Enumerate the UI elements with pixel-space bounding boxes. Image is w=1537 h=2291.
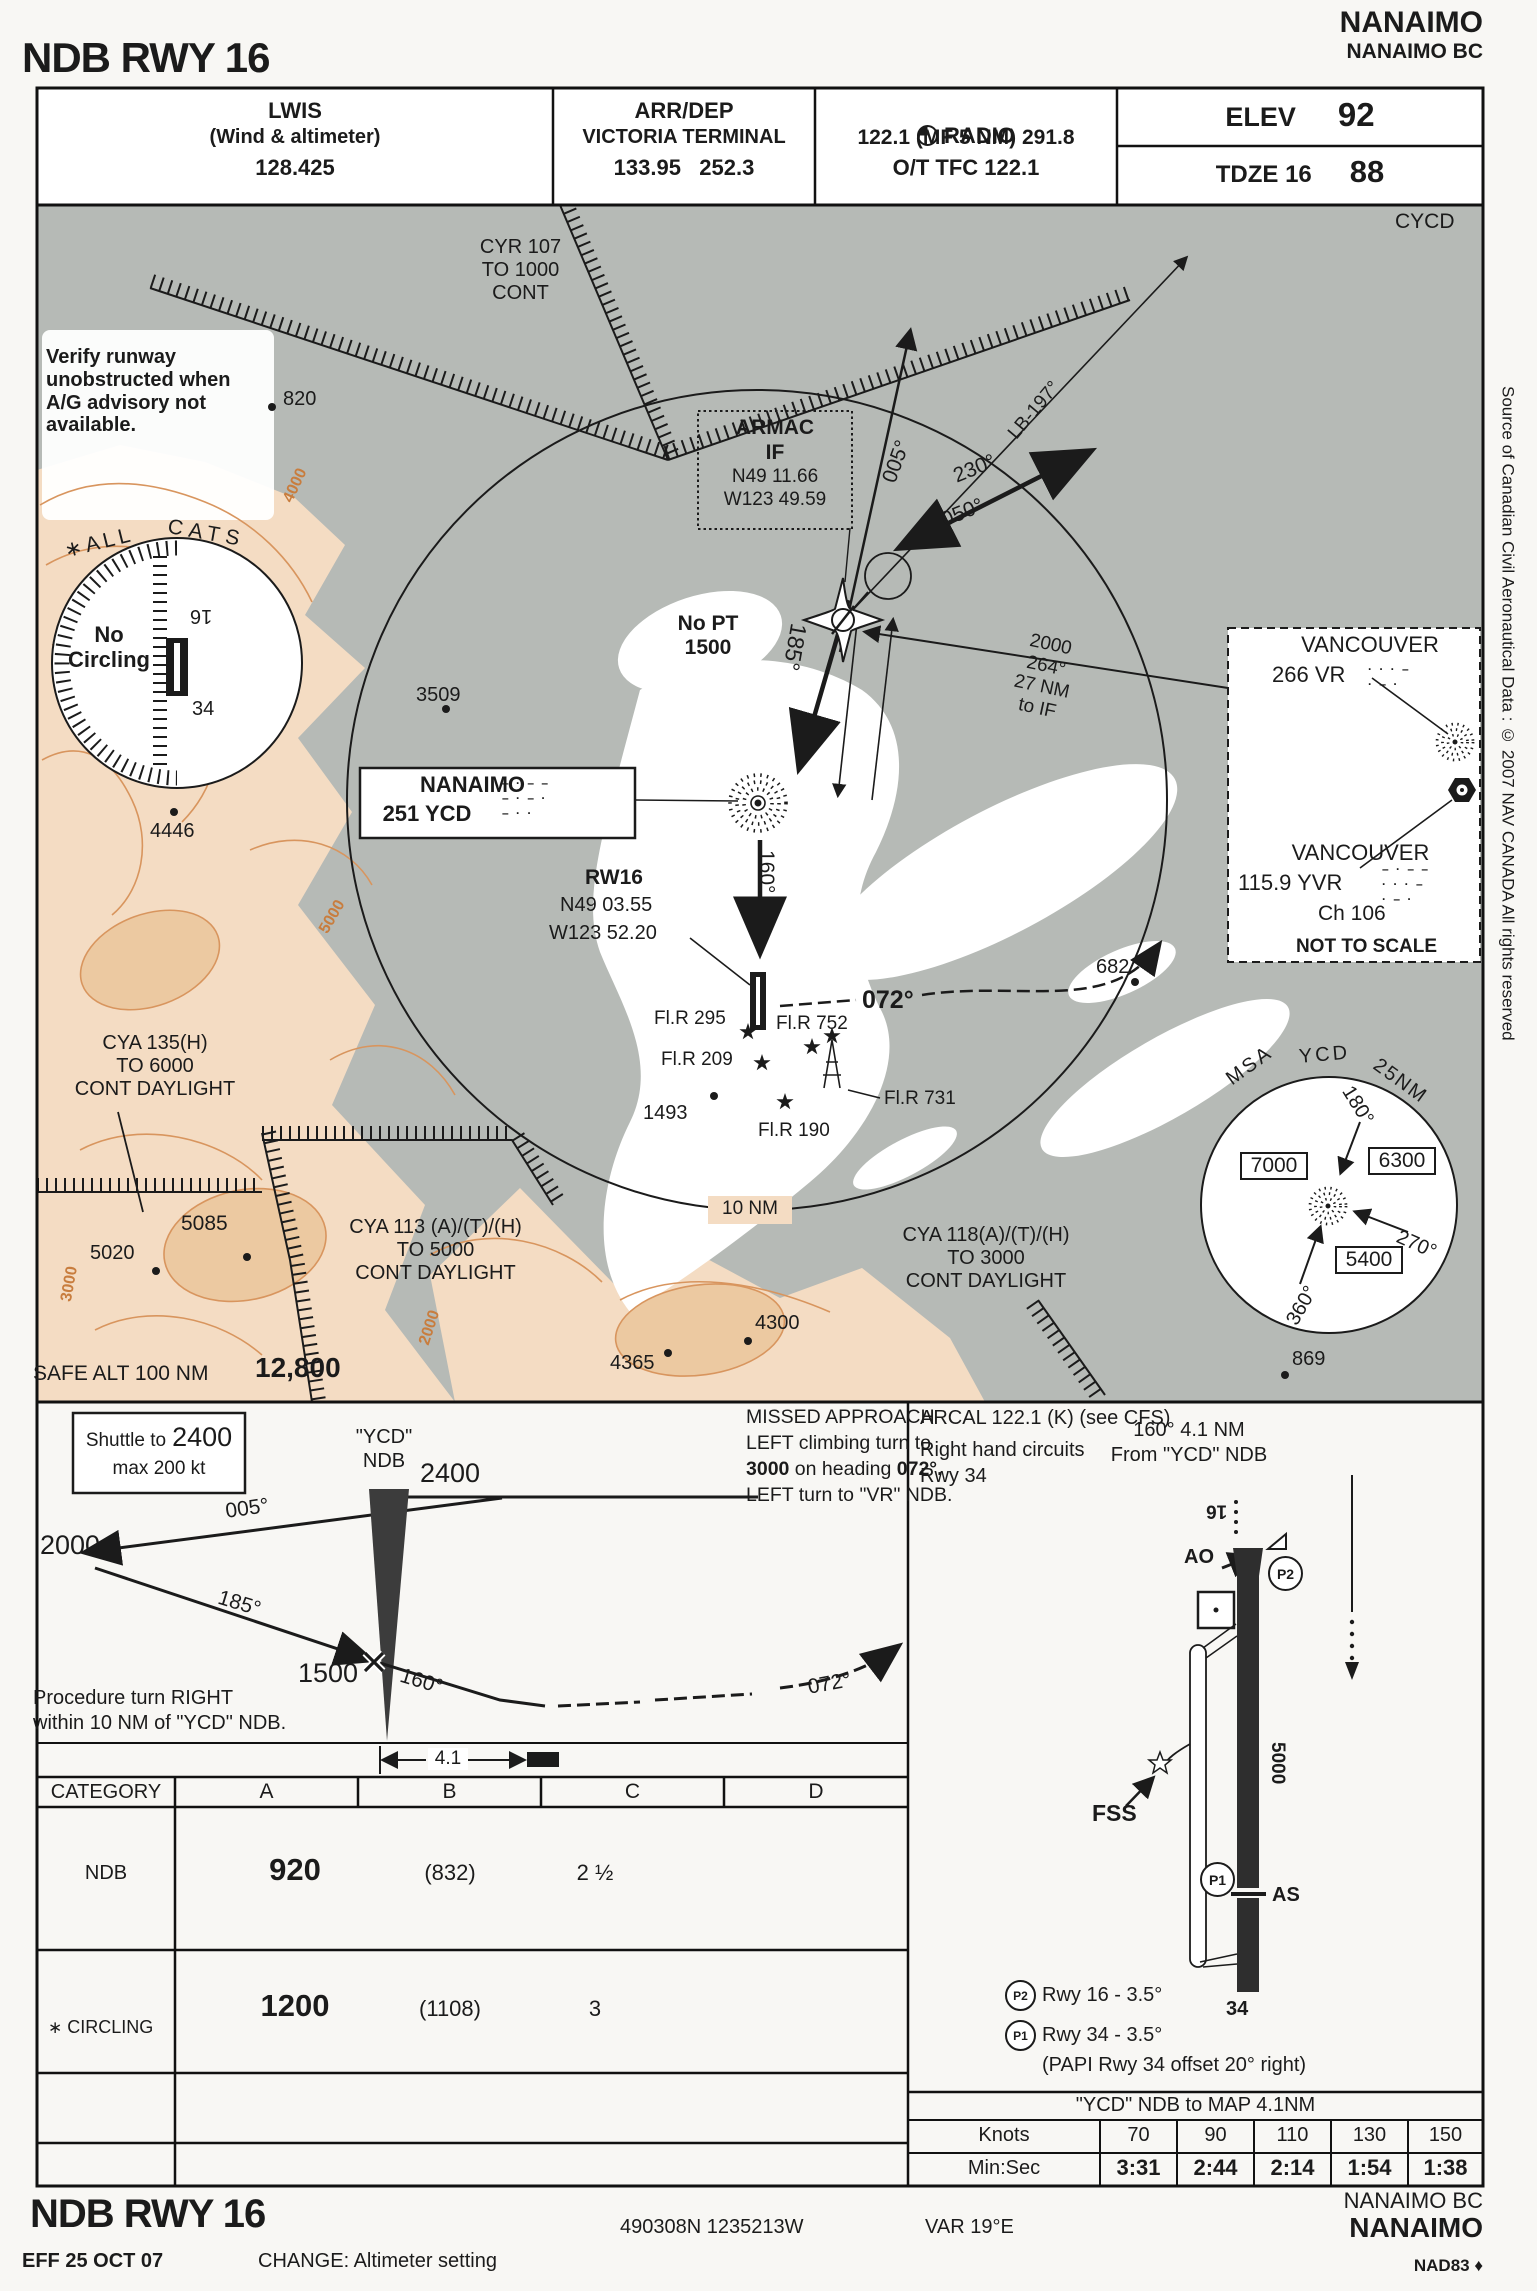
ruler-4-1: 4.1 [428,1748,468,1770]
missed-line3: 3000 on heading 072°. [746,1458,943,1480]
no-circling-label: No Circling [58,622,160,672]
speed-time-110: 2:14 [1254,2155,1331,2180]
minima-ndb-vis: 2 ½ [540,1860,650,1885]
spot-4300: 4300 [755,1312,800,1335]
inset-name1: VANCOUVER [1280,632,1460,657]
safe-alt-value: 12,800 [255,1352,341,1384]
arrdep-name: VICTORIA TERMINAL [553,126,815,149]
msa-circle [1201,1077,1457,1333]
speed-knot-150: 150 [1408,2124,1483,2147]
minima-header-a: A [175,1780,358,1804]
sketch-as: AS [1272,1884,1300,1907]
minima-circling-alt: 1200 [225,1988,365,2023]
spot-4446: 4446 [150,820,195,843]
sketch-rwy34: 34 [1226,1998,1248,2021]
arrdep-title: ARR/DEP [553,98,815,123]
minima-circling-paren: (1108) [395,1996,505,2021]
lwis-title: LWIS [37,98,553,123]
ndb-morse: – · – – – · – · – · · [502,776,627,821]
note-p1-circle: P1 [1005,2020,1036,2051]
lwis-sub: (Wind & altimeter) [37,126,553,149]
profile-ndb: NDB [356,1450,412,1473]
footer-location: NANAIMO BC [1230,2188,1483,2213]
speed-knot-110: 110 [1254,2124,1331,2147]
msa-title-2: YCD [1298,1042,1351,1069]
verify-note: Verify runway unobstructed when A/G advi… [46,346,271,437]
rw16-label: RW16 [585,866,643,890]
inset-morse2: – · – – · · · – · – · [1382,862,1430,907]
sketch-rwy16: 16 [1206,1500,1227,1522]
rw16-lat: N49 03.55 [560,894,652,917]
minima-header-b: B [358,1780,541,1804]
ring-10nm-label: 10 NM [710,1198,790,1220]
profile-2400: 2400 [420,1458,480,1489]
radio-freq: 122.1 (MF 5 NM) 291.8 [815,126,1117,150]
radio-other: O/T TFC 122.1 [815,155,1117,180]
profile-ndb-q: "YCD" [352,1426,416,1449]
chart-graphics [0,0,1537,2291]
footer-title: NDB RWY 16 [30,2192,265,2238]
ndb-freq: 251 YCD [362,801,492,826]
armac-lat: N49 11.66 [698,466,852,488]
missed-line1: MISSED APPROACH [746,1406,935,1428]
speed-time-label: Min:Sec [908,2157,1100,2180]
cya-118: CYA 118(A)/(T)/(H) TO 3000 CONT DAYLIGHT [876,1224,1096,1292]
speed-time-150: 1:38 [1408,2155,1483,2180]
armac-lon: W123 49.59 [698,489,852,511]
footer-effective-date: EFF 25 OCT 07 [22,2250,163,2273]
no-pt-label: No PT 1500 [664,612,752,660]
safe-alt-label: SAFE ALT 100 NM [33,1362,208,1386]
minima-header-category: CATEGORY [37,1781,175,1804]
note-p1-text: Rwy 34 - 3.5° [1042,2024,1162,2047]
minima-header-c: C [541,1780,724,1804]
airport-name-top: NANAIMO [1230,6,1483,40]
msa-7000: 7000 [1240,1152,1308,1180]
shuttle-line2: max 200 kt [73,1458,245,1480]
spot-869: 869 [1292,1348,1325,1371]
speed-time-90: 2:44 [1177,2155,1254,2180]
spot-820: 820 [283,388,316,411]
lwis-freq: 128.425 [37,155,553,180]
runway-symbol-map [750,972,766,1030]
footer-variation: VAR 19°E [925,2216,1014,2239]
speed-title: "YCD" NDB to MAP 4.1NM [908,2094,1483,2117]
inset-morse1: · · · – · – · [1368,662,1411,692]
page-title: NDB RWY 16 [22,34,270,82]
rw16-lon: W123 52.20 [549,922,657,945]
note-papi-text: (PAPI Rwy 34 offset 20° right) [1042,2054,1306,2077]
note-p2-circle: P2 [1005,1980,1036,2011]
bearing-160-map: 160° [754,850,778,893]
msa-5400: 5400 [1335,1246,1403,1274]
airport-location-top: NANAIMO BC [1230,40,1483,64]
from-ndb-note: 160° 4.1 NM From "YCD" NDB [1094,1418,1284,1468]
sketch-5000: 5000 [1266,1742,1288,1784]
footer-coords: 490308N 1235213W [620,2216,803,2239]
footer-change-note: CHANGE: Altimeter setting [258,2250,497,2273]
light-731: Fl.R 731 [884,1088,956,1110]
msa-6300: 6300 [1368,1147,1436,1175]
spot-3509: 3509 [416,684,461,707]
note-p2-text: Rwy 16 - 3.5° [1042,1984,1162,2007]
light-295: Fl.R 295 [654,1008,726,1030]
arrdep-freqs: 133.95 252.3 [553,155,815,180]
tdze-row: TDZE 16 88 [1117,154,1483,189]
footer-datum: NAD83 ♦ [1230,2256,1483,2275]
aerodrome-sketch [1126,1475,1359,1992]
spot-4365: 4365 [610,1352,655,1375]
profile-1500: 1500 [298,1658,358,1689]
light-752: Fl.R 752 [776,1013,848,1035]
light-190: Fl.R 190 [758,1120,830,1142]
nc-16: 16 [190,604,212,627]
cyr107-label: CYR 107 TO 1000 CONT [458,236,583,304]
speed-knot-90: 90 [1177,2124,1254,2147]
minima-circling-label: ∗ CIRCLING [48,1996,153,2037]
footer-name: NANAIMO [1230,2212,1483,2244]
light-209: Fl.R 209 [661,1049,733,1071]
missed-line2: LEFT climbing turn to [746,1432,931,1454]
speed-knot-130: 130 [1331,2124,1408,2147]
speed-knots-label: Knots [908,2124,1100,2147]
spot-5085: 5085 [181,1212,228,1236]
sketch-ao: AO [1184,1546,1214,1569]
sketch-p2-circle: P2 [1268,1556,1303,1591]
approach-chart-page: NDB RWY 16 NANAIMO NANAIMO BC LWIS (Wind… [0,0,1537,2291]
elev-row: ELEV 92 [1117,96,1483,134]
cya-135: CYA 135(H) TO 6000 CONT DAYLIGHT [50,1032,260,1100]
bearing-072-map: 072° [862,986,914,1015]
sketch-fss: FSS [1092,1800,1137,1826]
minima-circling-vis: 3 [540,1996,650,2021]
spot-1493: 1493 [643,1102,688,1125]
speed-knot-70: 70 [1100,2124,1177,2147]
profile-2000: 2000 [40,1530,100,1561]
copyright-note: Source of Canadian Civil Aeronautical Da… [1498,386,1517,1076]
inset-channel: Ch 106 [1318,902,1386,926]
procedure-turn-note: Procedure turn RIGHT within 10 NM of "YC… [33,1686,286,1736]
inset-id1: 266 VR [1272,662,1345,687]
spot-682: 682 [1096,956,1129,979]
speed-time-130: 1:54 [1331,2155,1408,2180]
nc-34: 34 [192,698,214,721]
spot-5020: 5020 [90,1242,135,1265]
circuits-note: Right hand circuits Rwy 34 [920,1437,1085,1489]
minima-header-d: D [724,1780,908,1804]
icao-code: CYCD [1395,210,1455,234]
speed-time-70: 3:31 [1100,2155,1177,2180]
minima-ndb-label: NDB [37,1862,175,1885]
armac-name: ARMAC [698,416,852,440]
sketch-p1-circle: P1 [1200,1862,1235,1897]
minima-ndb-alt: 920 [225,1852,365,1887]
inset-id2: 115.9 YVR [1238,870,1342,895]
shuttle-line1: Shuttle to2400 [73,1422,245,1453]
cya-113: CYA 113 (A)/(T)/(H) TO 5000 CONT DAYLIGH… [328,1216,543,1284]
inset-not-to-scale: NOT TO SCALE [1284,936,1449,958]
armac-if: IF [698,441,852,465]
minima-ndb-paren: (832) [395,1860,505,1885]
